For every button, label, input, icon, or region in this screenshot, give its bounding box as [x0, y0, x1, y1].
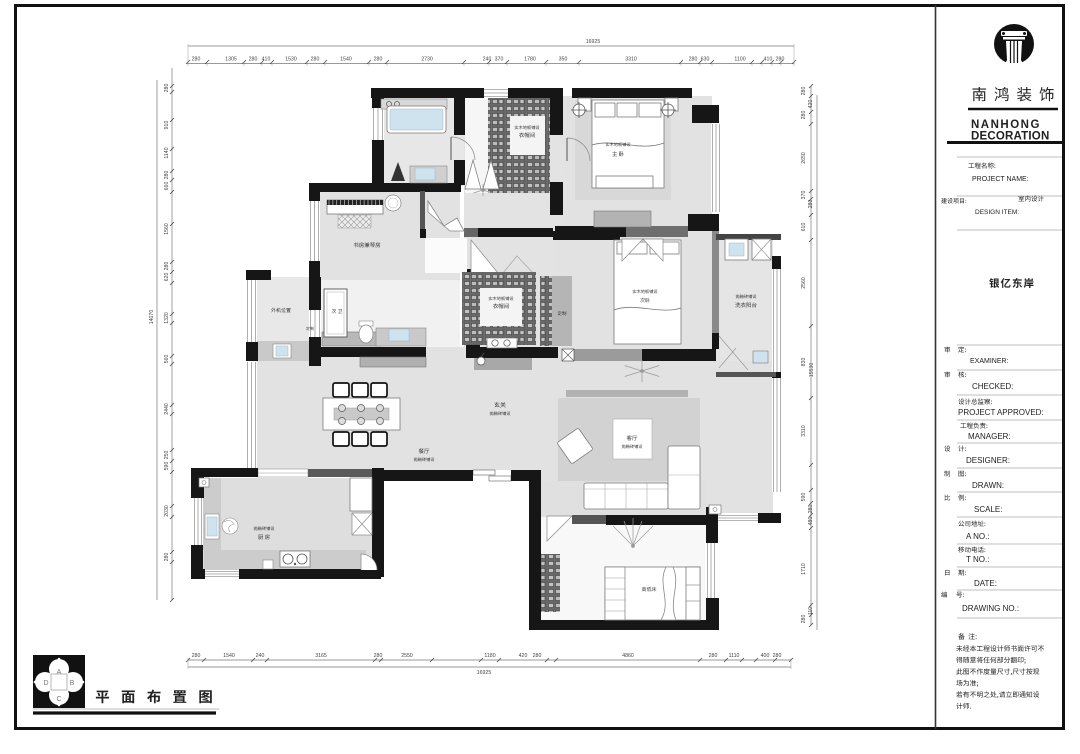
svg-text:560: 560 [164, 355, 170, 364]
svg-text:610: 610 [801, 223, 807, 232]
svg-text:DESIGNER:: DESIGNER: [966, 456, 1010, 465]
svg-text:2440: 2440 [164, 403, 170, 415]
svg-text:B: B [70, 680, 75, 687]
svg-text:2730: 2730 [421, 57, 433, 63]
svg-text:T NO.:: T NO.: [966, 555, 989, 564]
svg-text:420: 420 [519, 653, 528, 659]
svg-text:830: 830 [801, 358, 807, 367]
svg-text:2650: 2650 [801, 152, 807, 164]
svg-text:DRAWING NO.:: DRAWING NO.: [962, 604, 1019, 613]
svg-text:280: 280 [164, 262, 170, 271]
svg-text:DATE:: DATE: [974, 579, 997, 588]
svg-text:PROJECT NAME:: PROJECT NAME: [972, 176, 1029, 183]
svg-text:280: 280 [533, 653, 542, 659]
svg-text:1540: 1540 [340, 57, 352, 63]
svg-text:16925: 16925 [477, 670, 492, 676]
svg-text:1305: 1305 [225, 57, 237, 63]
svg-text:DRAWN:: DRAWN: [972, 481, 1004, 490]
svg-text:280: 280 [801, 111, 807, 120]
svg-text:280: 280 [709, 653, 718, 659]
svg-text:590: 590 [801, 493, 807, 502]
svg-text:3310: 3310 [801, 425, 807, 437]
svg-text:2550: 2550 [401, 653, 413, 659]
svg-text:280: 280 [164, 553, 170, 562]
svg-text:240: 240 [483, 57, 492, 63]
svg-text:C: C [56, 696, 61, 703]
svg-text:1780: 1780 [524, 57, 536, 63]
svg-text:280: 280 [808, 505, 814, 514]
svg-text:D: D [43, 680, 48, 687]
svg-text:410: 410 [764, 57, 773, 63]
svg-text:110: 110 [808, 607, 814, 615]
svg-text:420: 420 [808, 100, 814, 109]
svg-text:NANHONG: NANHONG [971, 119, 1041, 131]
svg-text:1540: 1540 [223, 653, 235, 659]
svg-text:1320: 1320 [164, 312, 170, 324]
svg-text:PROJECT APPROVED:: PROJECT APPROVED: [958, 408, 1044, 417]
svg-text:DESIGN ITEM:: DESIGN ITEM: [975, 209, 1019, 216]
svg-text:240: 240 [256, 653, 265, 659]
svg-text:280: 280 [801, 87, 807, 96]
svg-text:280: 280 [374, 57, 383, 63]
svg-text:1100: 1100 [734, 57, 745, 63]
svg-text:280: 280 [192, 653, 201, 659]
svg-text:1530: 1530 [285, 57, 297, 63]
svg-text:280: 280 [164, 171, 170, 180]
svg-text:1710: 1710 [801, 563, 807, 575]
svg-text:16925: 16925 [586, 39, 601, 45]
svg-text:620: 620 [164, 273, 170, 282]
svg-text:280: 280 [192, 57, 201, 63]
svg-text:370: 370 [801, 191, 807, 200]
svg-text:630: 630 [701, 57, 710, 63]
svg-text:SCALE:: SCALE: [974, 505, 1002, 514]
svg-text:3310: 3310 [625, 57, 637, 63]
svg-text:410: 410 [262, 57, 271, 63]
svg-text:2560: 2560 [801, 277, 807, 289]
svg-text:14070: 14070 [149, 310, 155, 325]
svg-text:4860: 4860 [622, 653, 634, 659]
svg-text:370: 370 [495, 57, 504, 63]
svg-text:660: 660 [164, 182, 170, 191]
svg-text:2030: 2030 [164, 505, 170, 517]
svg-text:280: 280 [311, 57, 320, 63]
svg-text:1180: 1180 [484, 653, 495, 659]
svg-text:280: 280 [776, 57, 785, 63]
svg-text:280: 280 [801, 615, 807, 624]
svg-text:350: 350 [559, 57, 568, 63]
svg-text:480: 480 [808, 517, 814, 526]
svg-text:250: 250 [164, 451, 170, 460]
svg-text:280: 280 [249, 57, 258, 63]
svg-text:280: 280 [374, 653, 383, 659]
svg-text:3165: 3165 [315, 653, 327, 659]
svg-text:1140: 1140 [164, 147, 170, 158]
svg-text:910: 910 [164, 121, 170, 130]
svg-text:MANAGER:: MANAGER: [968, 432, 1011, 441]
svg-text:400: 400 [761, 653, 770, 659]
svg-text:1560: 1560 [164, 223, 170, 235]
svg-text:280: 280 [164, 84, 170, 93]
svg-text:1110: 1110 [729, 653, 740, 659]
svg-text:A NO.:: A NO.: [966, 532, 990, 541]
svg-text:15530: 15530 [809, 363, 815, 378]
svg-text:280: 280 [689, 57, 698, 63]
svg-text:DECORATION: DECORATION [971, 131, 1049, 143]
svg-text:590: 590 [164, 462, 170, 471]
svg-text:CHECKED:: CHECKED: [972, 382, 1013, 391]
svg-text:A: A [57, 669, 62, 676]
svg-text:EXAMINER:: EXAMINER: [970, 358, 1009, 365]
